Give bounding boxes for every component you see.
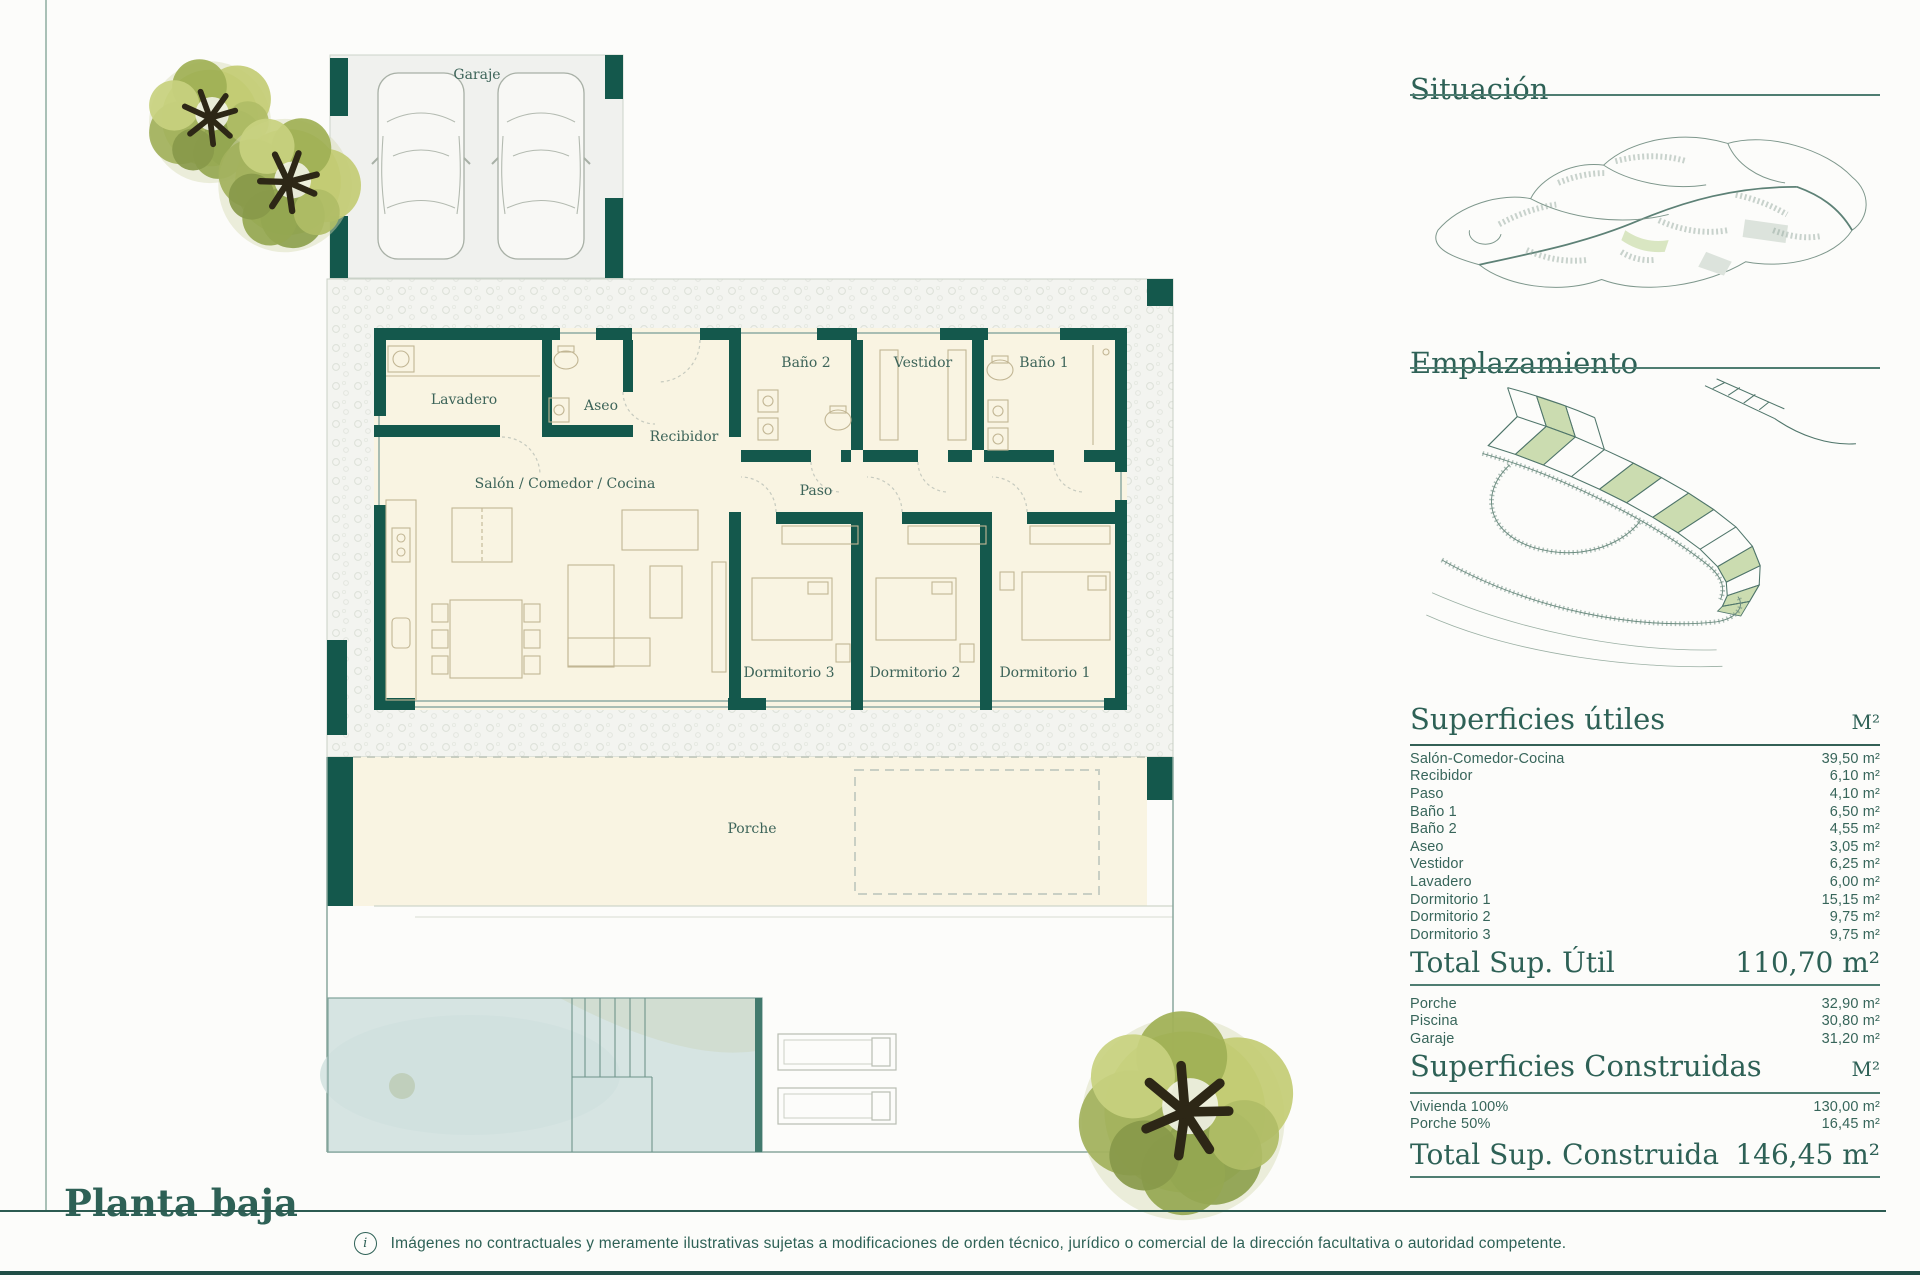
row-value: 6,10 m² bbox=[1830, 768, 1880, 784]
row-value: 3,05 m² bbox=[1830, 839, 1880, 855]
superficies-utiles-unit: M² bbox=[1852, 710, 1881, 734]
superficies-utiles-title: Superficies útiles bbox=[1410, 702, 1665, 736]
superficies-construidas-unit: M² bbox=[1852, 1057, 1881, 1081]
page-left-rule bbox=[45, 0, 47, 1211]
room-label-aseo: Aseo bbox=[583, 398, 618, 414]
situacion-map bbox=[1410, 104, 1880, 316]
total-construida-rule bbox=[1410, 1176, 1880, 1178]
row-value: 30,80 m² bbox=[1822, 1013, 1880, 1029]
superficies-construidas-rule bbox=[1410, 1092, 1880, 1094]
room-label-dormitorio-1: Dormitorio 1 bbox=[999, 665, 1090, 681]
table-row: Lavadero6,00 m² bbox=[1410, 873, 1880, 891]
row-value: 39,50 m² bbox=[1822, 751, 1880, 767]
total-sup-util: Total Sup. Útil 110,70 m² bbox=[1410, 946, 1880, 979]
room-label-lavadero: Lavadero bbox=[431, 392, 497, 408]
row-value: 9,75 m² bbox=[1830, 927, 1880, 943]
room-label-dormitorio-2: Dormitorio 2 bbox=[869, 665, 960, 681]
room-label-vestidor: Vestidor bbox=[893, 355, 953, 371]
situacion-rule bbox=[1410, 94, 1880, 96]
table-row: Baño 16,50 m² bbox=[1410, 803, 1880, 821]
emplazamiento-map bbox=[1410, 376, 1880, 676]
row-label: Vestidor bbox=[1410, 856, 1464, 872]
table-row: Dormitorio 29,75 m² bbox=[1410, 908, 1880, 926]
page-title: Planta baja bbox=[64, 1181, 298, 1225]
table-row: Garaje31,20 m² bbox=[1410, 1030, 1880, 1048]
row-value: 4,55 m² bbox=[1830, 821, 1880, 837]
table-row: Vivienda 100%130,00 m² bbox=[1410, 1098, 1880, 1116]
table-row: Salón-Comedor-Cocina39,50 m² bbox=[1410, 750, 1880, 768]
room-label-bano-2: Baño 2 bbox=[781, 355, 830, 371]
table-row: Aseo3,05 m² bbox=[1410, 838, 1880, 856]
floorplan-drawing: Garaje Lavadero Aseo Recibidor Baño 2 Ve… bbox=[0, 0, 1410, 1280]
row-label: Porche 50% bbox=[1410, 1116, 1491, 1132]
superficies-utiles-table: Salón-Comedor-Cocina39,50 m² Recibidor6,… bbox=[1410, 750, 1880, 944]
table-row: Piscina30,80 m² bbox=[1410, 1013, 1880, 1031]
bottom-rule bbox=[0, 1271, 1920, 1275]
row-value: 4,10 m² bbox=[1830, 786, 1880, 802]
superficies-construidas-header: Superficies Construidas M² bbox=[1410, 1049, 1880, 1083]
extras-table: Porche32,90 m² Piscina30,80 m² Garaje31,… bbox=[1410, 995, 1880, 1048]
table-row: Paso4,10 m² bbox=[1410, 785, 1880, 803]
room-label-paso: Paso bbox=[800, 483, 833, 499]
porch bbox=[353, 757, 1173, 917]
total-value: 146,45 m² bbox=[1735, 1138, 1880, 1171]
table-row: Recibidor6,10 m² bbox=[1410, 768, 1880, 786]
garage bbox=[330, 55, 623, 278]
row-label: Lavadero bbox=[1410, 874, 1472, 890]
superficies-construidas-title: Superficies Construidas bbox=[1410, 1049, 1762, 1083]
row-label: Porche bbox=[1410, 996, 1457, 1012]
row-value: 130,00 m² bbox=[1813, 1099, 1880, 1115]
row-label: Aseo bbox=[1410, 839, 1444, 855]
car-icon bbox=[372, 73, 470, 259]
table-row: Dormitorio 39,75 m² bbox=[1410, 926, 1880, 944]
pool bbox=[320, 998, 762, 1152]
disclaimer-text: Imágenes no contractuales y meramente il… bbox=[391, 1235, 1567, 1253]
row-value: 32,90 m² bbox=[1822, 996, 1880, 1012]
table-row: Porche 50%16,45 m² bbox=[1410, 1116, 1880, 1134]
footer: i Imágenes no contractuales y meramente … bbox=[0, 1232, 1920, 1255]
row-label: Paso bbox=[1410, 786, 1444, 802]
row-value: 6,00 m² bbox=[1830, 874, 1880, 890]
room-label-garaje: Garaje bbox=[453, 67, 500, 83]
row-label: Salón-Comedor-Cocina bbox=[1410, 751, 1565, 767]
row-label: Garaje bbox=[1410, 1031, 1454, 1047]
row-label: Recibidor bbox=[1410, 768, 1473, 784]
row-value: 31,20 m² bbox=[1822, 1031, 1880, 1047]
row-label: Dormitorio 2 bbox=[1410, 909, 1491, 925]
emplazamiento-rule bbox=[1410, 367, 1880, 369]
construidas-table: Vivienda 100%130,00 m² Porche 50%16,45 m… bbox=[1410, 1098, 1880, 1133]
row-value: 6,50 m² bbox=[1830, 804, 1880, 820]
superficies-utiles-header: Superficies útiles M² bbox=[1410, 702, 1880, 736]
car-icon bbox=[492, 73, 590, 259]
room-label-dormitorio-3: Dormitorio 3 bbox=[743, 665, 834, 681]
sun-loungers bbox=[778, 1034, 896, 1124]
table-row: Porche32,90 m² bbox=[1410, 995, 1880, 1013]
row-value: 6,25 m² bbox=[1830, 856, 1880, 872]
row-value: 15,15 m² bbox=[1822, 892, 1880, 908]
row-value: 16,45 m² bbox=[1822, 1116, 1880, 1132]
row-label: Baño 2 bbox=[1410, 821, 1457, 837]
total-label: Total Sup. Útil bbox=[1410, 946, 1615, 979]
row-label: Dormitorio 1 bbox=[1410, 892, 1491, 908]
room-label-bano-1: Baño 1 bbox=[1019, 355, 1068, 371]
row-label: Vivienda 100% bbox=[1410, 1099, 1508, 1115]
title-rule bbox=[0, 1210, 1886, 1212]
row-label: Baño 1 bbox=[1410, 804, 1457, 820]
sidebar: Situación Emplazamiento bbox=[1410, 0, 1880, 1280]
room-label-recibidor: Recibidor bbox=[650, 429, 719, 445]
total-util-rule bbox=[1410, 984, 1880, 986]
house-floor bbox=[374, 328, 1127, 710]
total-value: 110,70 m² bbox=[1735, 946, 1880, 979]
total-label: Total Sup. Construida bbox=[1410, 1138, 1719, 1171]
row-label: Piscina bbox=[1410, 1013, 1458, 1029]
superficies-utiles-rule bbox=[1410, 744, 1880, 746]
row-value: 9,75 m² bbox=[1830, 909, 1880, 925]
table-row: Vestidor6,25 m² bbox=[1410, 856, 1880, 874]
info-icon: i bbox=[354, 1232, 377, 1255]
tree-icon bbox=[1059, 991, 1309, 1243]
room-label-salon: Salón / Comedor / Cocina bbox=[475, 476, 656, 492]
situacion-title: Situación bbox=[1410, 74, 1548, 106]
room-label-porche: Porche bbox=[727, 821, 776, 837]
table-row: Dormitorio 115,15 m² bbox=[1410, 891, 1880, 909]
table-row: Baño 24,55 m² bbox=[1410, 820, 1880, 838]
brochure-page: Garaje Lavadero Aseo Recibidor Baño 2 Ve… bbox=[0, 0, 1920, 1280]
total-sup-construida: Total Sup. Construida 146,45 m² bbox=[1410, 1138, 1880, 1171]
row-label: Dormitorio 3 bbox=[1410, 927, 1491, 943]
